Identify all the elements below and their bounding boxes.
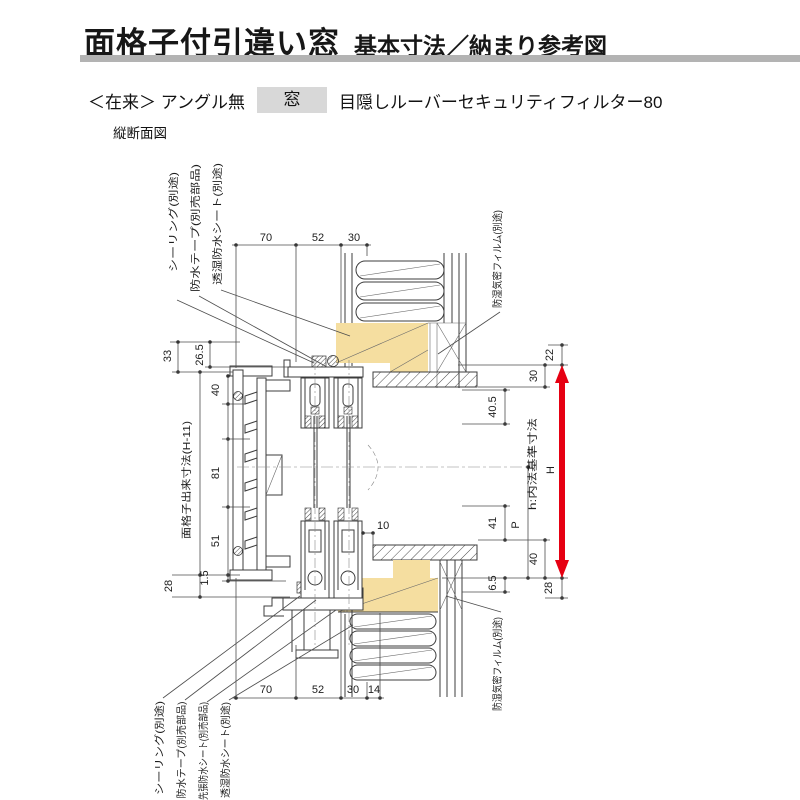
sash-interior	[334, 378, 362, 598]
dim-right-P: P	[510, 521, 522, 528]
callout-top-right: 防湿気密フィルム(別途)	[438, 210, 504, 354]
dim-right-40: 40	[528, 553, 540, 565]
callout-sealing-top: シーリング(別途)	[167, 172, 180, 272]
callout-breathable-sheet-top: 透湿防水シート(別途)	[211, 163, 224, 285]
sill-trim-hatched	[373, 545, 477, 560]
dim-right-28: 28	[543, 582, 555, 594]
dim-right-22: 22	[544, 349, 556, 361]
dim-left-33: 33	[162, 350, 174, 362]
dim-right-h-label: h:内法基準寸法	[526, 418, 539, 510]
dim-left-40: 40	[210, 384, 222, 396]
callout-waterproof-tape-top: 防水テープ(別売部品)	[189, 164, 202, 292]
dim-top-52: 52	[312, 232, 324, 244]
callout-pre-applied-sheet-bottom: 先張防水シート(別売部品)	[197, 702, 210, 800]
callouts-top-left: シーリング(別途) 防水テープ(別売部品) 透湿防水シート(別途)	[167, 163, 350, 367]
dim-left-26-5: 26.5	[194, 344, 206, 365]
dim-bottom-30: 30	[347, 684, 359, 696]
dim-right-H: H	[545, 466, 557, 474]
dim-top-70: 70	[260, 232, 272, 244]
dim-left-81: 81	[210, 467, 222, 479]
louver-grille	[230, 366, 290, 580]
callout-vapor-film-bottom: 防湿気密フィルム(別途)	[491, 617, 504, 711]
insulation-bottom	[350, 614, 436, 680]
dim-right-41: 41	[487, 517, 499, 529]
dim-left-grille-label: 面格子出来寸法(H-11)	[180, 421, 193, 539]
dim-bottom-70: 70	[260, 684, 272, 696]
lintel-wood	[336, 323, 428, 372]
dim-left-1-5-51: 51	[210, 535, 222, 547]
dim-right-6-5: 6.5	[487, 575, 499, 590]
head-trim-hatched	[373, 372, 477, 387]
page: 面格子付引違い窓基本寸法／納まり参考図 ＜在来＞ アングル無 窓 目隠しルーバー…	[0, 0, 800, 800]
dim-right-40-5: 40.5	[487, 396, 499, 417]
callout-sealing-bottom: シーリング(別途)	[153, 701, 166, 795]
callout-breathable-sheet-bottom: 透湿防水シート(別途)	[219, 702, 232, 798]
callout-waterproof-tape-bottom: 防水テープ(別売部品)	[175, 702, 188, 799]
insulation-top	[356, 261, 444, 321]
height-arrow	[555, 365, 569, 578]
dim-left-28: 28	[163, 580, 175, 592]
dim-bottom-52: 52	[312, 684, 324, 696]
dim-left-1-5: 1.5	[199, 570, 211, 585]
dim-right-10: 10	[377, 520, 389, 532]
dim-top-30: 30	[348, 232, 360, 244]
callout-vapor-film-top: 防湿気密フィルム(別途)	[491, 210, 504, 308]
dim-bottom-14: 14	[368, 684, 380, 696]
section-drawing: 70 52 30 70 52 30 14	[0, 0, 800, 800]
dim-right-30: 30	[528, 370, 540, 382]
